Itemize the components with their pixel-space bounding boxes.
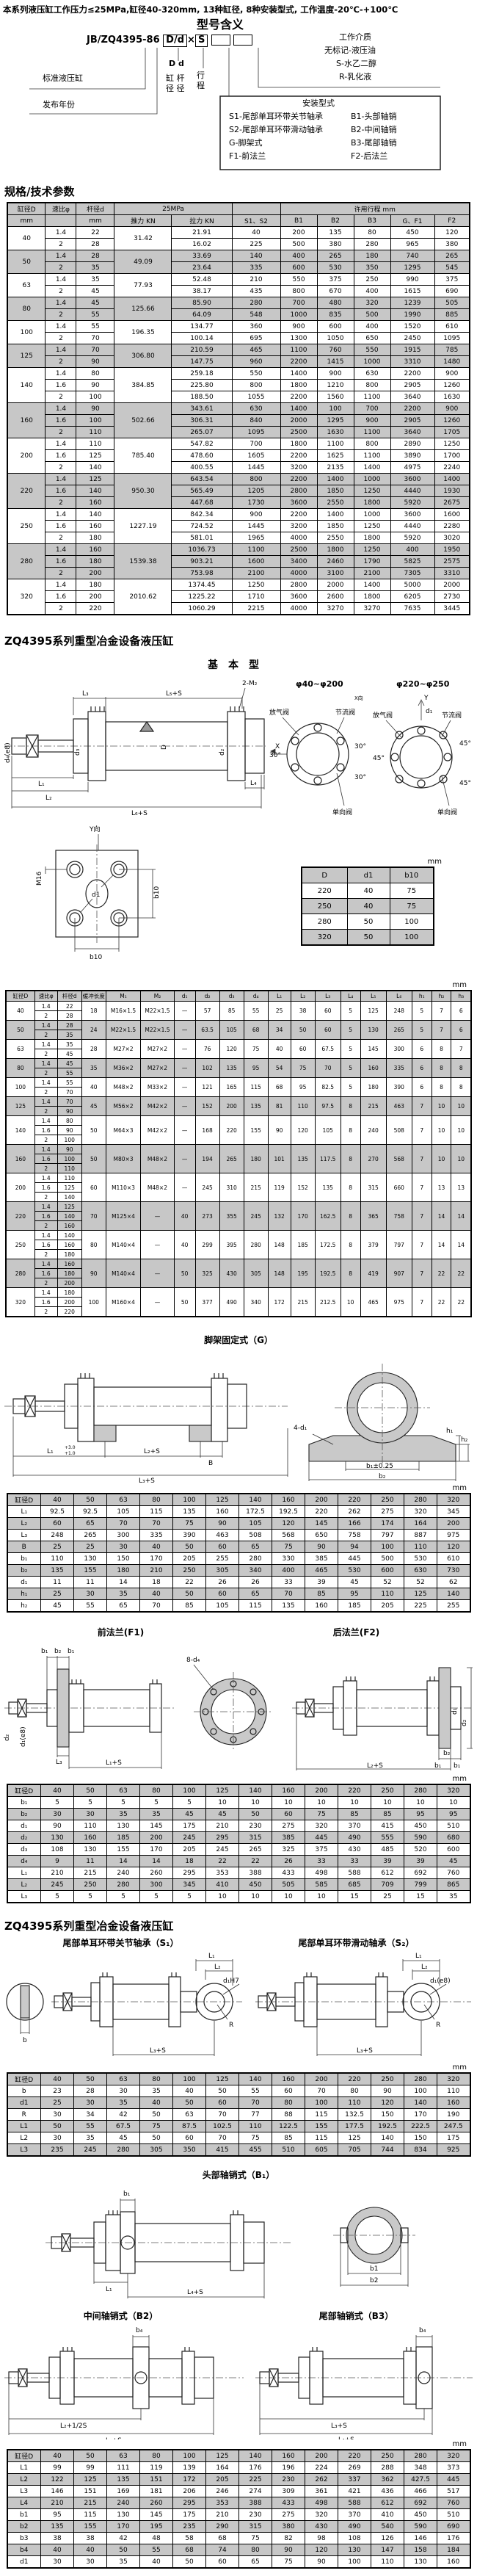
table-cell: 34	[74, 2109, 107, 2121]
table-cell: 335	[386, 1059, 412, 1078]
table-cell: 1295	[317, 415, 354, 427]
table-cell: 50	[291, 1021, 315, 1040]
table-cell: 80	[140, 1784, 173, 1797]
table-cell: M160×4	[106, 1288, 140, 1317]
table-cell: 50	[173, 2097, 206, 2109]
table-cell: 235	[41, 2144, 74, 2157]
table-cell: 7	[451, 1040, 471, 1059]
table-cell: 42	[107, 2533, 140, 2544]
table-cell: 210	[140, 1565, 173, 1577]
view-label: Y向	[89, 825, 101, 833]
table-cell: 7	[412, 1259, 432, 1288]
table-cell: 800	[354, 380, 390, 391]
basic-diagram-row: L₃ L₅+S 2-M₂ L₁ L₂ L₆+S L₄ d₄(e8) d₃ D d…	[0, 675, 477, 818]
table-cell: 1400	[280, 368, 317, 380]
table-cell: 2600	[317, 591, 354, 603]
table-cell: 1.4	[45, 227, 76, 239]
table-cell: 2	[34, 1164, 57, 1173]
table-cell: 40	[174, 1231, 195, 1259]
table-cell: 35	[81, 1059, 106, 1078]
table-cell: 160	[57, 1221, 81, 1231]
table-cell: 1445	[232, 521, 280, 532]
table-cell: 165	[219, 1078, 244, 1097]
dim-label: D	[161, 745, 168, 750]
table-cell: 3020	[434, 532, 470, 544]
table-cell: 130	[360, 1021, 386, 1040]
flange-dimension-table: 缸径D40506380100125140160200220250280320b₁…	[0, 1784, 477, 1903]
table-cell: 170	[140, 1844, 173, 1856]
table-cell: 220	[219, 1116, 244, 1145]
table-cell: 92.5	[74, 1506, 107, 1518]
table-cell: 2800	[280, 579, 317, 591]
table-cell: 180	[57, 1288, 81, 1298]
table-cell: 30	[41, 2109, 74, 2121]
table-cell: b3	[7, 2533, 41, 2544]
table-cell: 245	[244, 1202, 268, 1231]
table-cell: 465	[232, 344, 280, 356]
table-cell: 125	[206, 1784, 239, 1797]
table-cell: 220	[305, 1506, 338, 1518]
table-cell: 709	[371, 1879, 404, 1891]
table-cell: 8	[341, 1231, 360, 1259]
table-cell: 300	[107, 1530, 140, 1541]
dim-label: h₁	[446, 1428, 454, 1435]
table-cell: 95	[41, 2509, 74, 2521]
table-cell: d₂	[7, 1832, 41, 1844]
table-cell: 355	[219, 1202, 244, 1231]
table-cell: 50	[173, 2556, 206, 2569]
table-cell: 900	[354, 415, 390, 427]
table-cell: 1210	[317, 380, 354, 391]
table-cell: M140×4	[106, 1259, 140, 1288]
table-cell: 68	[173, 2544, 206, 2556]
table-cell: 5	[74, 1797, 107, 1809]
dim-label: 8-d₄	[186, 1657, 200, 1664]
table-cell: 22	[451, 1259, 471, 1288]
table-cell: L3	[7, 2144, 41, 2157]
s-dimension-table: 缸径D40506380100125140160200220250280320b2…	[0, 2072, 477, 2157]
table-cell: 70	[239, 2097, 272, 2109]
table-cell: 160	[57, 1259, 81, 1269]
dim-label: B	[208, 1460, 213, 1467]
dim-label: L₁	[38, 781, 45, 788]
table-cell: 2730	[434, 591, 470, 603]
table-cell: 172	[268, 1288, 291, 1317]
unit-label: mm	[283, 857, 452, 866]
valve-leaders	[386, 700, 451, 806]
table-cell: 200	[7, 438, 45, 474]
dim-label: b1	[370, 2265, 378, 2273]
table-cell: 194	[195, 1145, 219, 1173]
table-cell: 14	[107, 1856, 140, 1867]
table-cell: 10	[341, 1288, 360, 1317]
cylinder-body	[258, 1972, 440, 2027]
table-cell: 1.4	[45, 544, 76, 556]
angle-label: 45°	[373, 755, 385, 762]
table-cell: 174	[371, 1518, 404, 1530]
table-cell: 65	[107, 1600, 140, 1613]
table-cell: 343.61	[172, 403, 232, 415]
table-cell: 568	[272, 1530, 305, 1541]
table-cell: 77	[239, 2109, 272, 2121]
table-cell: 33	[338, 1856, 371, 1867]
table-cell: 1965	[232, 532, 280, 544]
table-cell: 80	[140, 2450, 173, 2462]
table-cell: 353	[206, 2497, 239, 2509]
table-cell: 7	[412, 1231, 432, 1259]
table-cell: 3270	[354, 603, 390, 615]
table-cell: 2	[34, 1135, 57, 1145]
table-cell: 1.6	[45, 450, 76, 462]
table-cell: 135	[41, 1565, 74, 1577]
table-cell: 50	[41, 2121, 74, 2132]
table-cell: 797	[386, 1231, 412, 1259]
table-cell: 50	[74, 1494, 107, 1506]
table-cell: 192.5	[272, 1506, 305, 1518]
table-cell: 22	[173, 1577, 206, 1588]
table-cell: 60	[272, 1809, 305, 1820]
table-cell: 1850	[317, 485, 354, 497]
bore-range-label: φ40~φ200	[296, 679, 343, 689]
table-cell: 130	[107, 2509, 140, 2521]
table-cell: 125	[206, 2073, 239, 2085]
unit-label: mm	[0, 980, 477, 990]
table-cell: 7	[412, 1097, 432, 1116]
dim-label: R	[436, 2022, 440, 2029]
table-cell: 100	[173, 1784, 206, 1797]
table-cell: 110	[371, 2556, 404, 2569]
table-cell: 68	[268, 1078, 291, 1097]
table-cell: 175	[437, 2132, 470, 2144]
table-cell: 120	[272, 1518, 305, 1530]
table-cell: 265	[74, 1530, 107, 1541]
table-cell: 612	[371, 2497, 404, 2509]
plate-dims	[45, 866, 156, 952]
table-cell: 335	[232, 262, 280, 274]
table-cell: 419	[360, 1259, 386, 1288]
table-cell: 7	[412, 1202, 432, 1231]
dimension-lines	[94, 2199, 264, 2298]
table-cell: 450	[390, 227, 434, 239]
table-cell: 100	[173, 1494, 206, 1506]
table-cell: 245	[206, 1844, 239, 1856]
table-cell: 248	[386, 1002, 412, 1021]
table-cell: 5	[341, 1002, 360, 1021]
b23-titles: 中间轴销式（B2） 尾部轴销式（B3）	[0, 2309, 477, 2322]
table-cell: 58	[173, 2533, 206, 2544]
table-cell: 1560	[317, 391, 354, 403]
table-cell: 965	[390, 239, 434, 250]
table-cell: 353	[206, 1867, 239, 1879]
table-cell: —	[174, 1145, 195, 1173]
table-cell: 5	[41, 1797, 74, 1809]
table-cell: M16×1.5	[106, 1002, 140, 1021]
table-cell: 550	[354, 344, 390, 356]
table-cell: 160	[76, 544, 114, 556]
table-cell: d1	[347, 867, 390, 883]
table-cell: 6205	[390, 591, 434, 603]
dim-label: b₂	[54, 1648, 62, 1655]
table-cell: 1.6	[34, 1269, 57, 1278]
table-cell: 225	[239, 2474, 272, 2486]
table-cell: 225	[404, 1600, 437, 1613]
table-cell: 299	[195, 1231, 219, 1259]
table-cell: 10	[206, 1797, 239, 1809]
table-cell: 35	[107, 2556, 140, 2569]
table-cell: B1	[280, 215, 317, 227]
table-cell: 188.50	[172, 391, 232, 403]
table-cell: 466	[404, 2486, 437, 2497]
table-cell: 1100	[317, 438, 354, 450]
table-cell: 388	[239, 2497, 272, 2509]
table-cell: 55	[239, 2085, 272, 2097]
table-cell: 45	[107, 2132, 140, 2144]
table-cell: 40	[41, 2544, 74, 2556]
table-cell: 130	[74, 1553, 107, 1565]
table-cell: 99	[41, 2462, 74, 2474]
model-title: 型号含义	[197, 18, 244, 32]
table-cell: 568	[386, 1145, 412, 1173]
table-cell: 685	[338, 1879, 371, 1891]
table-cell: 8	[341, 1202, 360, 1231]
table-cell: 320	[305, 2509, 338, 2521]
table-cell: 1100	[354, 427, 390, 438]
table-cell: 175	[173, 2509, 206, 2521]
table-cell: 拉力 KN	[172, 215, 232, 227]
mount-g: G-脚架式	[229, 139, 263, 148]
table-cell: 690	[437, 2521, 470, 2533]
table-cell: 1.6	[45, 415, 76, 427]
table-cell: F2	[434, 215, 470, 227]
dim-label: b₁	[454, 1762, 461, 1770]
table-cell: 115	[244, 1078, 268, 1097]
table-cell: 145	[140, 1820, 173, 1832]
table-cell: 40	[41, 1494, 74, 1506]
table-cell: 280	[107, 1879, 140, 1891]
table-cell: 510	[272, 2144, 305, 2157]
table-cell: 105	[206, 1600, 239, 1613]
table-cell: 1.4	[34, 1097, 57, 1107]
dim-label: d₄(e8)	[4, 742, 12, 763]
table-cell: 122.5	[272, 2121, 305, 2132]
table-cell: 140	[6, 1116, 34, 1145]
table-cell: 4000	[280, 568, 317, 579]
table-cell: 132.5	[338, 2109, 371, 2121]
table-cell: 2240	[434, 462, 470, 474]
table-cell: 166	[338, 1518, 371, 1530]
table-cell: 395	[219, 1231, 244, 1259]
table-cell: 7	[432, 1021, 451, 1040]
table-cell: 80	[81, 1231, 106, 1259]
table-cell: 630	[232, 403, 280, 415]
table-cell: —	[141, 1202, 174, 1231]
table-cell: 610	[437, 1553, 470, 1565]
table-cell: 305	[244, 1259, 268, 1288]
table-cell: 8	[341, 1145, 360, 1173]
table-cell: 375	[305, 1844, 338, 1856]
table-cell: 35	[76, 262, 114, 274]
table-cell: 40	[140, 1541, 173, 1553]
table-cell: 10	[272, 1797, 305, 1809]
table-cell: 250	[74, 1879, 107, 1891]
table-cell: 410	[206, 1879, 239, 1891]
dim-label: b₁±0.25	[366, 1463, 393, 1470]
dimension-lines	[9, 2335, 214, 2435]
table-cell: 10	[272, 1891, 305, 1903]
table-cell: 548	[232, 309, 280, 321]
table-cell: 265	[317, 250, 354, 262]
table-cell: 95	[291, 1078, 315, 1097]
table-cell: 146	[404, 2533, 437, 2544]
table-cell: 436	[371, 2486, 404, 2497]
table-cell: 1400	[434, 474, 470, 485]
table-cell: 262	[305, 2474, 338, 2486]
dim-label: b₂	[379, 1473, 386, 1480]
table-cell: 184	[437, 2544, 470, 2556]
table-cell: 90	[305, 2556, 338, 2569]
table-cell: b1	[7, 2509, 41, 2521]
table-cell: 505	[434, 297, 470, 309]
table-cell: 40	[41, 2450, 74, 2462]
table-cell: 60	[206, 1588, 239, 1600]
table-cell: 5	[107, 1891, 140, 1903]
table-cell: 520	[404, 1844, 437, 1856]
table-cell: 145	[360, 1040, 386, 1059]
table-cell: 508	[239, 1530, 272, 1541]
table-cell: 60	[291, 1040, 315, 1059]
table-cell: 14	[140, 1856, 173, 1867]
table-cell: 5	[173, 1797, 206, 1809]
table-cell: 100	[390, 930, 434, 946]
table-cell: 505	[272, 1879, 305, 1891]
axis-label: X	[275, 743, 280, 750]
table-cell: 190	[437, 2109, 470, 2121]
table-cell: 305	[206, 1565, 239, 1577]
table-cell: 110	[371, 1588, 404, 1600]
table-cell: 85	[305, 1588, 338, 1600]
table-cell: 120	[434, 227, 470, 239]
table-cell: D	[302, 867, 347, 883]
table-cell: 50	[173, 1541, 206, 1553]
table-cell: 3600	[390, 509, 434, 521]
table-cell: 35	[76, 274, 114, 286]
table-cell: 65	[239, 2556, 272, 2569]
table-cell: 160	[76, 497, 114, 509]
table-cell: 320	[7, 579, 45, 615]
table-cell: 2135	[317, 462, 354, 474]
dim-label: d₁	[426, 708, 433, 715]
table-cell: 39	[404, 1856, 437, 1867]
table-cell: 900	[280, 321, 317, 333]
table-cell: 1400	[354, 579, 390, 591]
table-cell: 速比φ	[45, 203, 76, 215]
table-cell: 63	[107, 2450, 140, 2462]
table-cell: 1100	[280, 344, 317, 356]
mount-b2: B2-中间轴销	[351, 126, 397, 135]
check-valve-label: 单向阀	[437, 808, 457, 817]
table-cell: 200	[219, 1097, 244, 1116]
table-cell: 508	[386, 1116, 412, 1145]
table-cell: 1295	[390, 262, 434, 274]
table-cell: 缸径D	[6, 991, 34, 1002]
table-cell: 22	[432, 1259, 451, 1288]
table-cell: 3310	[390, 356, 434, 368]
table-cell: 75	[239, 2533, 272, 2544]
table-cell: 1800	[317, 544, 354, 556]
table-cell: 430	[338, 1844, 371, 1856]
table-cell: L₄	[341, 991, 360, 1002]
label-bore: 缸 杆	[166, 74, 185, 84]
table-cell: 210	[41, 2497, 74, 2509]
table-cell: 2000	[317, 579, 354, 591]
table-cell: 390	[386, 1078, 412, 1097]
table-cell: 1.4	[45, 579, 76, 591]
table-cell: 110	[74, 1820, 107, 1832]
table-cell: 40	[41, 1784, 74, 1797]
table-cell: 185	[291, 1231, 315, 1259]
dim-label: d₂	[4, 1734, 11, 1741]
table-cell: 300	[386, 1040, 412, 1059]
table-cell: 70	[272, 1588, 305, 1600]
table-cell: 1710	[232, 591, 280, 603]
table-cell: 63.5	[195, 1021, 219, 1040]
mount-f2: F2-后法兰	[351, 152, 387, 162]
table-cell: 1850	[317, 521, 354, 532]
table-cell: 100	[173, 2073, 206, 2085]
table-cell: L1	[7, 2462, 41, 2474]
table-cell: 415	[206, 2144, 239, 2157]
table-cell: 2100	[354, 568, 390, 579]
table-cell: 33	[272, 1577, 305, 1588]
table-cell: 3100	[317, 568, 354, 579]
table-cell: 160	[7, 403, 45, 438]
table-cell: 7635	[390, 603, 434, 615]
table-cell: 45	[76, 297, 114, 309]
table-cell: 724.52	[172, 521, 232, 532]
s1-title: 尾部单耳环带关节轴承（S₁）	[3, 1936, 238, 1949]
dim-label: L₁	[415, 1953, 422, 1960]
table-cell: 1400	[280, 403, 317, 415]
table-cell: 1205	[232, 485, 280, 497]
table-cell: 643.54	[172, 474, 232, 485]
table-cell: —	[174, 1021, 195, 1040]
table-cell: 1.6	[45, 556, 76, 568]
table-cell: 40	[140, 2556, 173, 2569]
table-cell: 30	[74, 2556, 107, 2569]
basic-end-view-large-bore: φ220~φ250 Y d₁ 放气阀 节流阀 单向阀 45° 45° 45°	[371, 675, 474, 818]
table-cell: 90	[41, 1820, 74, 1832]
table-cell: 3200	[280, 462, 317, 474]
table-cell: 105	[219, 1021, 244, 1040]
table-cell: 180	[76, 556, 114, 568]
s-titles: 尾部单耳环带关节轴承（S₁） 尾部单耳环带滑动轴承（S₂）	[0, 1936, 477, 1949]
table-cell: 100.14	[172, 333, 232, 344]
table-cell: M36×2	[106, 1059, 140, 1078]
table-cell: 52.48	[172, 274, 232, 286]
table-cell: 200	[76, 568, 114, 579]
table-cell: 11	[41, 1577, 74, 1588]
table-cell: 10	[404, 1797, 437, 1809]
table-cell: L4	[7, 2497, 41, 2509]
table-cell: 110	[437, 2085, 470, 2097]
s2-title: 尾部单耳环带滑动轴承（S₂）	[238, 1936, 474, 1949]
b1-diagram-row: b₁ L₁ L₄+S b1 b2	[0, 2182, 477, 2304]
table-cell: 220	[57, 1307, 81, 1317]
table-cell: 247.5	[437, 2121, 470, 2132]
table-cell: 1415	[317, 356, 354, 368]
table-cell: 10	[206, 1891, 239, 1903]
dim-label: h₂	[461, 1436, 468, 1444]
